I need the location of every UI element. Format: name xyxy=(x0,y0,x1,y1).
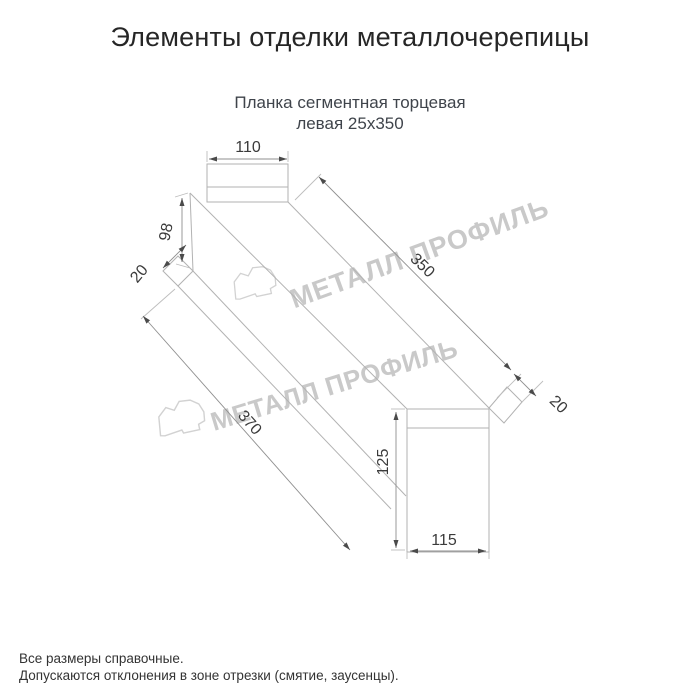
dim-line-20-right xyxy=(514,374,536,396)
cloud-logo-watermark-1 xyxy=(230,264,278,301)
bottom-end-face xyxy=(407,409,489,552)
product-drawing-page: Элементы отделки металлочерепицы Планка … xyxy=(0,0,700,700)
part-outline xyxy=(163,164,522,552)
dim-label-end-height: 125 xyxy=(375,449,392,476)
dim-label-overall-length: 370 xyxy=(234,407,265,438)
strip-edge-1 xyxy=(190,193,407,409)
footer-notes: Все размеры справочные. Допускаются откл… xyxy=(19,650,399,684)
right-fold-end xyxy=(489,387,522,423)
technical-drawing: 110 98 20 350 20 370 125 115 xyxy=(0,0,700,700)
footer-note-1: Все размеры справочные. xyxy=(19,650,399,667)
dimension-labels: 110 98 20 350 20 370 125 115 xyxy=(127,139,570,549)
left-fold-end xyxy=(163,256,193,286)
footer-note-2: Допускаются отклонения в зоне отрезки (с… xyxy=(19,667,399,684)
dim-label-side-height: 98 xyxy=(156,221,176,242)
dim-line-350 xyxy=(319,177,511,370)
top-end-face xyxy=(207,164,288,202)
strip-edge-2 xyxy=(288,202,489,408)
dim-label-end-width: 115 xyxy=(431,532,457,549)
dim-line-20-left xyxy=(163,245,186,268)
cloud-logo-watermark-2 xyxy=(154,397,207,438)
dim-label-face-length: 350 xyxy=(407,250,438,281)
extension-lines xyxy=(141,151,543,559)
left-end-side-edge xyxy=(190,193,193,271)
dimension-lines xyxy=(143,159,536,551)
dim-label-right-fold: 20 xyxy=(546,392,571,417)
dim-label-left-fold: 20 xyxy=(127,262,152,287)
dim-label-top-width: 110 xyxy=(235,139,261,156)
